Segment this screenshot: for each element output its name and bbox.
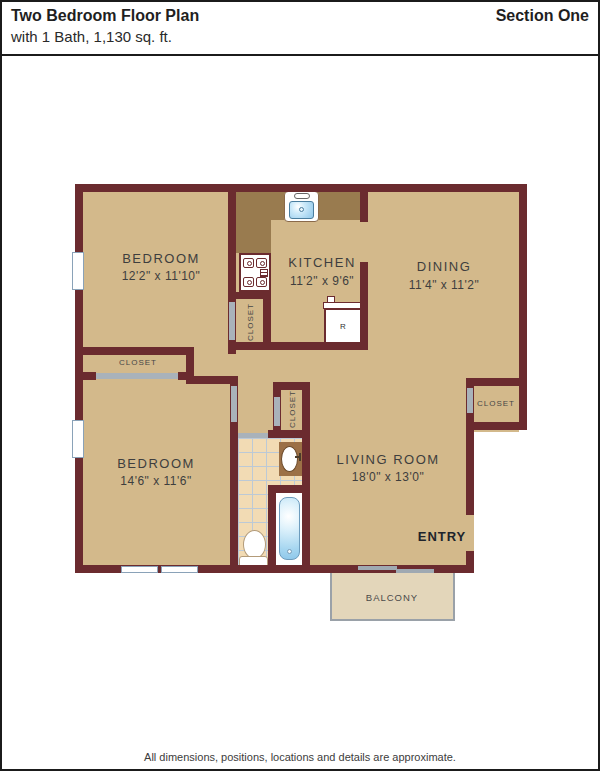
kitchen-sink-drain [299, 207, 304, 212]
stove-burner-dot [247, 280, 252, 285]
wall-segment [360, 262, 368, 350]
disclaimer-text: All dimensions, positions, locations and… [0, 751, 600, 763]
floor-plan-page: Two Bedroom Floor Plan with 1 Bath, 1,13… [0, 0, 600, 776]
balcony-label: BALCONY [366, 592, 418, 603]
window [72, 420, 84, 458]
wall-segment [75, 372, 96, 380]
sliding-door-panel [396, 569, 434, 573]
wall-segment [466, 551, 474, 573]
header-divider [0, 54, 600, 56]
refrigerator-icon: R [324, 308, 362, 345]
room-dims-bedroom-1: 12'2" x 11'10" [122, 269, 201, 283]
bathroom-faucet-icon [299, 453, 301, 461]
wall-segment [466, 422, 527, 430]
stove-burner-dot [260, 261, 265, 266]
wall-segment [268, 485, 276, 573]
stove-burner [243, 277, 254, 287]
toilet-bowl-icon [243, 530, 266, 559]
room-label-kitchen: KITCHEN [288, 255, 356, 270]
door-opening-hall-closet [274, 397, 280, 426]
bathroom-sink-icon [281, 446, 298, 472]
room-dims-bedroom-2: 14'6" x 11'6" [120, 474, 191, 488]
window [121, 566, 158, 573]
room-label-bedroom-2: BEDROOM [117, 456, 195, 471]
wall-segment [302, 382, 310, 573]
room-dims-living-room: 18'0" x 13'0" [352, 470, 424, 484]
wall-segment [75, 184, 527, 192]
door-opening-bedroom-2 [231, 386, 237, 422]
door-opening-bathroom [238, 433, 268, 438]
stove-burner-dot [260, 280, 265, 285]
room-dims-dining: 11'4" x 11'2" [409, 278, 480, 292]
window [161, 566, 198, 573]
room-label-dining: DINING [417, 259, 472, 274]
wall-segment [83, 347, 190, 355]
wall-segment [466, 378, 527, 386]
wall-segment [268, 485, 310, 493]
closet-label: CLOSET [246, 303, 255, 341]
stove-burner-dot [247, 261, 252, 266]
room-label-living-room: LIVING ROOM [336, 452, 439, 467]
wall-segment [186, 376, 238, 384]
section-label: Section One [496, 7, 589, 25]
closet-label: CLOSET [288, 390, 297, 428]
door-opening-closet-strip [96, 373, 178, 379]
door-opening-bedroom-1-closet [229, 302, 235, 340]
stove-burner [256, 258, 267, 268]
bathtub-drain [287, 549, 292, 554]
room-label-bedroom-1: BEDROOM [122, 251, 200, 266]
entry-label: ENTRY [418, 529, 467, 544]
stove-burner [256, 277, 267, 287]
wall-segment [228, 342, 368, 350]
kitchen-counter-left [236, 220, 271, 253]
closet-label: CLOSET [119, 358, 157, 367]
stove-burner [243, 258, 254, 268]
refrigerator-label: R [340, 322, 346, 331]
window [72, 252, 84, 290]
wall-segment [360, 184, 368, 222]
floor-entry-gap [466, 515, 474, 551]
wall-segment [519, 184, 527, 430]
door-opening-entry-closet [467, 388, 473, 413]
floor-upper [83, 192, 519, 432]
room-dims-kitchen: 11'2" x 9'6" [290, 274, 354, 288]
stove-control-icon [260, 269, 268, 277]
stove-icon [239, 253, 271, 292]
kitchen-faucet-icon [294, 193, 310, 199]
page-title: Two Bedroom Floor Plan [11, 7, 199, 25]
page-subtitle: with 1 Bath, 1,130 sq. ft. [11, 28, 172, 45]
sliding-door-panel [358, 566, 397, 570]
closet-label: CLOSET [477, 399, 515, 408]
